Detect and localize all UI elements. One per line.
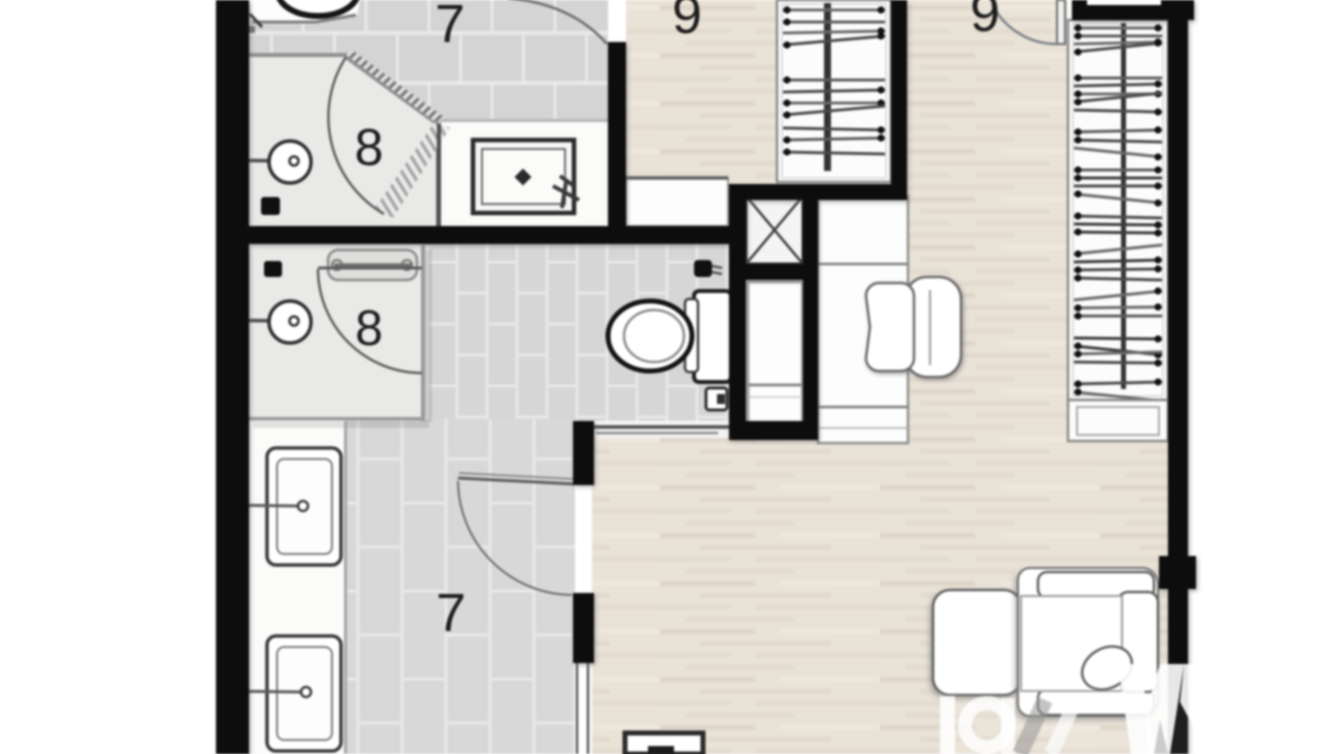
svg-text:8: 8 bbox=[355, 119, 384, 177]
svg-text:8: 8 bbox=[355, 300, 383, 356]
svg-text:9: 9 bbox=[672, 0, 702, 45]
svg-text:7: 7 bbox=[436, 583, 466, 643]
svg-text:7: 7 bbox=[435, 0, 465, 54]
svg-text:9: 9 bbox=[970, 0, 1000, 43]
